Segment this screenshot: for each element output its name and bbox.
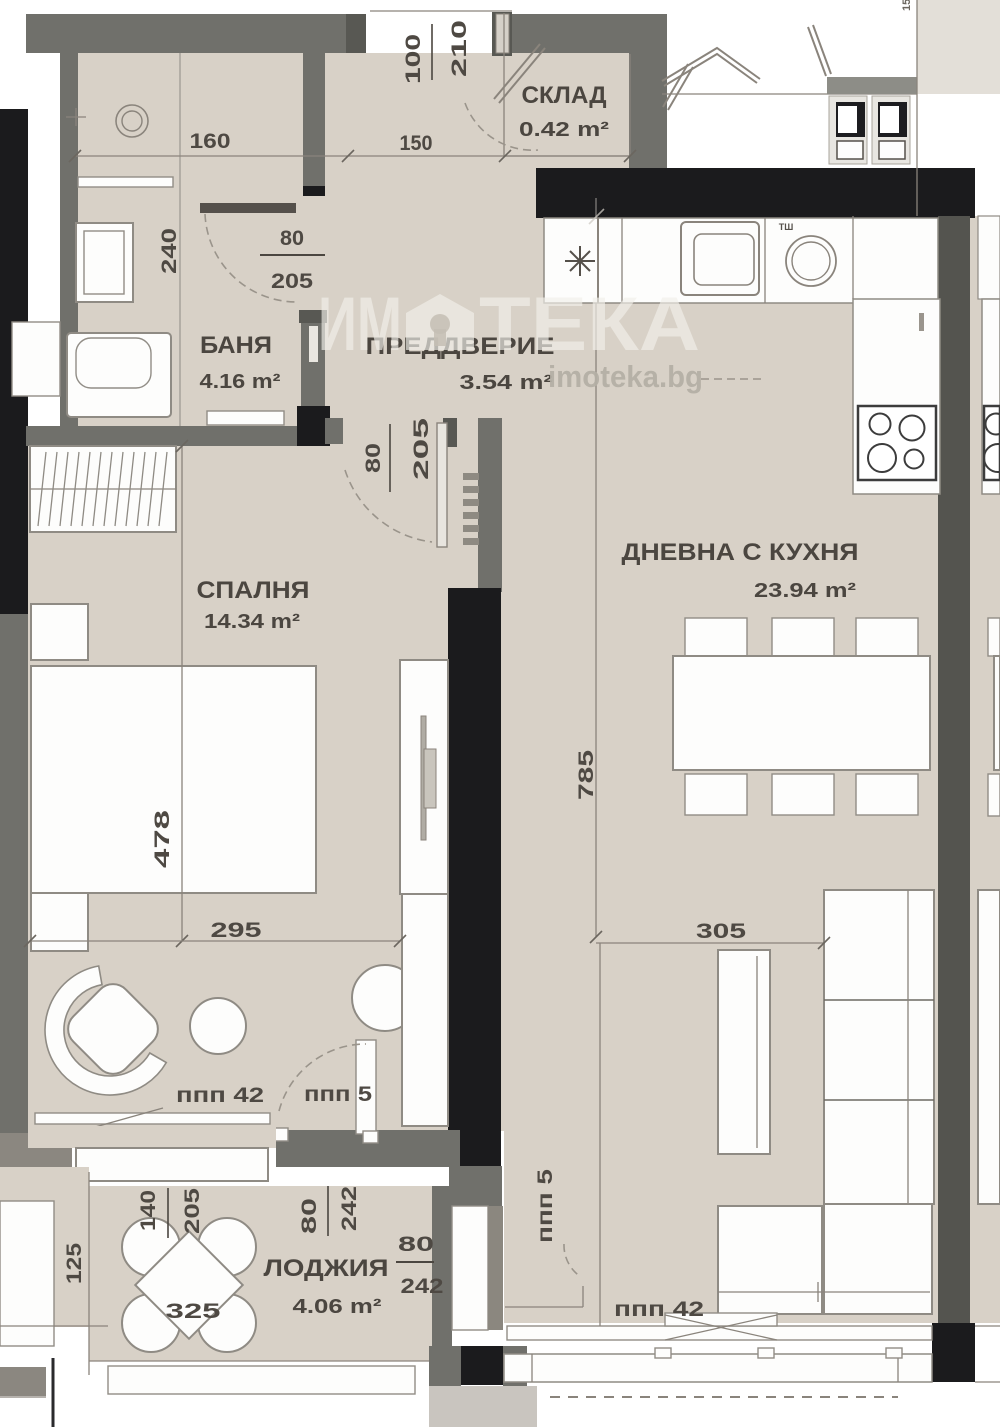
svg-text:785: 785 [575,750,598,800]
svg-text:БАНЯ: БАНЯ [200,332,272,359]
svg-text:15: 15 [901,0,913,11]
svg-text:325: 325 [166,1300,221,1323]
svg-text:ЛОДЖИЯ: ЛОДЖИЯ [264,1255,389,1282]
svg-text:150: 150 [400,132,433,155]
svg-text:СКЛАД: СКЛАД [522,82,607,109]
svg-text:100: 100 [402,34,425,84]
svg-text:160: 160 [190,130,231,153]
svg-text:295: 295 [211,919,262,942]
svg-text:ТЕКА: ТЕКА [479,282,700,367]
svg-text:205: 205 [410,417,433,480]
svg-text:305: 305 [696,920,746,943]
svg-text:3.54 m²: 3.54 m² [460,372,553,394]
svg-text:ппп 5: ппп 5 [304,1083,372,1106]
svg-text:210: 210 [448,20,471,77]
svg-text:ппп 42: ппп 42 [614,1298,704,1321]
svg-text:ТШ: ТШ [779,222,794,232]
svg-text:205: 205 [271,270,313,293]
svg-text:СПАЛНЯ: СПАЛНЯ [197,577,310,604]
svg-text:80: 80 [362,443,385,473]
svg-text:imoteka.bg: imoteka.bg [548,359,703,394]
svg-text:80: 80 [280,227,304,250]
svg-text:240: 240 [158,228,181,274]
svg-text:ппп 5: ппп 5 [534,1169,557,1243]
svg-text:140: 140 [137,1190,160,1231]
svg-text:23.94 m²: 23.94 m² [754,580,856,602]
svg-text:205: 205 [181,1188,204,1234]
svg-text:80: 80 [298,1198,321,1234]
svg-text:80: 80 [398,1233,434,1256]
svg-text:125: 125 [63,1243,86,1284]
svg-text:4.16 m²: 4.16 m² [200,371,281,393]
svg-text:242: 242 [338,1186,361,1231]
svg-text:ДНЕВНА С КУХНЯ: ДНЕВНА С КУХНЯ [622,539,859,566]
svg-text:242: 242 [401,1275,444,1298]
svg-text:0.42 m²: 0.42 m² [519,119,609,141]
svg-text:14.34 m²: 14.34 m² [204,611,300,633]
svg-text:478: 478 [151,809,174,868]
svg-text:ппп 42: ппп 42 [176,1084,264,1107]
svg-text:ИМ: ИМ [318,282,402,367]
svg-text:4.06 m²: 4.06 m² [293,1296,382,1318]
